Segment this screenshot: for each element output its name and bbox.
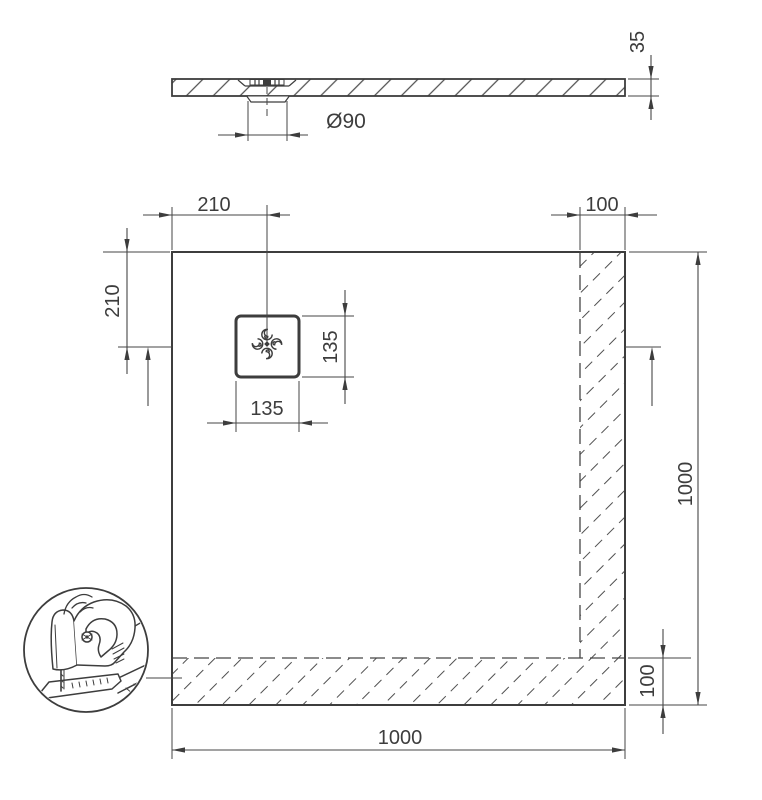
arrow-up-icon: [660, 705, 665, 718]
arrow-up-icon: [695, 252, 700, 265]
arrow-right-icon: [235, 132, 248, 137]
shower-tray-technical-drawing: 35 Ø90: [0, 0, 762, 800]
arrow-down-icon: [660, 645, 665, 658]
plan-view: 210 100 210: [102, 194, 707, 759]
dim-drain-diameter: Ø90: [218, 101, 366, 141]
drain-offset-left-label: 210: [102, 284, 124, 317]
arrow-up-icon: [649, 347, 654, 360]
drain-axis-marker-left: [145, 347, 150, 406]
drawing-canvas: 35 Ø90: [0, 0, 762, 800]
arrow-down-icon: [342, 303, 347, 316]
arrow-left-icon: [299, 420, 312, 425]
side-section-view: 35 Ø90: [172, 31, 659, 141]
drain-box-width-label: 135: [250, 398, 283, 420]
right-cut-strip-label: 100: [585, 194, 618, 216]
thickness-label: 35: [627, 31, 649, 53]
bottom-cut-strip-label: 100: [637, 664, 659, 697]
arrow-down-icon: [124, 239, 129, 252]
arrow-left-icon: [267, 212, 280, 217]
drain-box-height-label: 135: [320, 330, 342, 363]
arrow-up-icon: [145, 347, 150, 360]
arrow-left-icon: [172, 747, 185, 752]
drain-offset-top-label: 210: [197, 194, 230, 216]
overall-height-label: 1000: [675, 462, 697, 507]
dim-drain-box-width: 135: [207, 381, 328, 432]
dim-right-cut-strip: 100: [551, 194, 657, 250]
dim-overall-width: 1000: [172, 708, 625, 759]
drain-flange: [247, 97, 289, 103]
drain-diameter-label: Ø90: [326, 110, 366, 133]
arrow-right-icon: [567, 212, 580, 217]
dim-drain-offset-top: 210: [143, 194, 290, 250]
dim-overall-height: 1000: [629, 252, 707, 705]
arrow-left-icon: [625, 212, 638, 217]
arrow-right-icon: [159, 212, 172, 217]
overall-width-label: 1000: [378, 727, 423, 749]
dim-thickness: 35: [627, 31, 659, 120]
dim-drain-box-height: 135: [302, 290, 354, 404]
arrow-up-icon: [342, 377, 347, 390]
arrow-down-icon: [648, 66, 653, 79]
dim-drain-offset-left: 210: [102, 228, 172, 374]
arrow-left-icon: [287, 132, 300, 137]
dim-bottom-cut-strip: 100: [628, 629, 691, 734]
arrow-up-icon: [648, 96, 653, 109]
drain-axis-marker-right: [625, 347, 661, 406]
cut-detail: [24, 588, 182, 712]
arrow-down-icon: [695, 692, 700, 705]
arrow-right-icon: [223, 420, 236, 425]
arrow-right-icon: [612, 747, 625, 752]
arrow-up-icon: [124, 347, 129, 360]
